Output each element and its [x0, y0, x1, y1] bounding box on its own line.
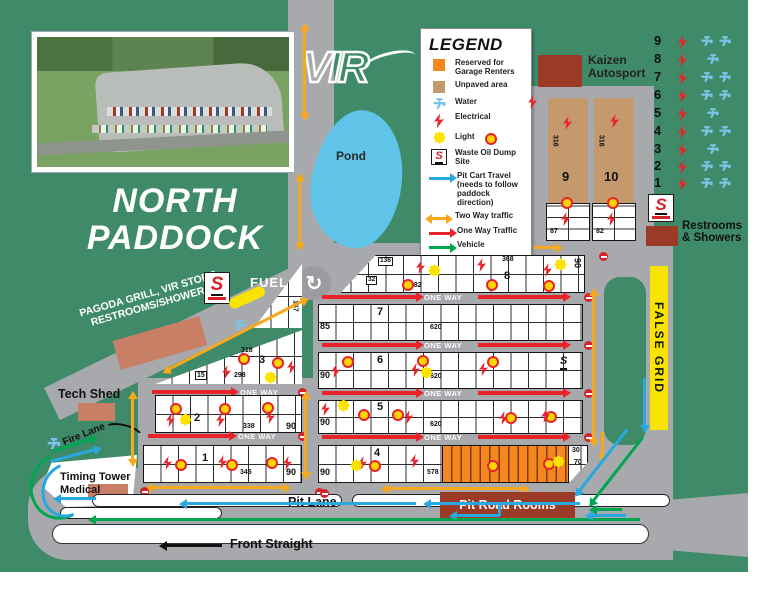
one-way-arrow: [478, 295, 564, 299]
row7-mid-label: 620: [430, 324, 442, 331]
road-right-wedge: [660, 493, 748, 557]
water-icon: [718, 161, 732, 171]
false-grid-strip: FALSE GRID: [650, 266, 668, 430]
electrical-icon: [678, 107, 687, 121]
vir-logo: VIR: [302, 46, 422, 90]
block-32-label: 32: [366, 276, 377, 285]
light-icon: [342, 356, 354, 368]
electrical-icon: [678, 125, 687, 139]
row3-number: 3: [259, 355, 265, 367]
grass-island: [604, 277, 646, 445]
pit-cart-arrow: [430, 502, 580, 505]
water-icon: [700, 72, 714, 82]
vehicle-arrow: [95, 518, 640, 521]
legend-item-two-way: Two Way traffic: [429, 212, 525, 222]
water-icon: [706, 144, 720, 154]
electrical-icon: [678, 177, 687, 191]
lot-82-label: 82: [596, 228, 604, 235]
row6-mid-label: 620: [430, 373, 442, 380]
one-way-arrow: [478, 343, 564, 347]
pit-cart-arrow: [186, 502, 416, 505]
row6-left-label: 90: [320, 371, 330, 380]
utility-row-8: 8: [654, 52, 661, 66]
electrical-icon: [678, 143, 687, 157]
vehicle-arrow: [429, 241, 451, 251]
water-icon: [700, 126, 714, 136]
strip10-number: 10: [604, 170, 618, 184]
block-345-label: 345: [240, 469, 252, 476]
photo-trucks-2: [92, 125, 267, 133]
front-straight-arrow: [166, 544, 222, 547]
block-338-label: 338: [243, 423, 255, 430]
waste-oil-icon: S: [648, 194, 674, 222]
one-way-label: ONE WAY: [424, 293, 462, 302]
row5-number: 5: [377, 402, 383, 414]
one-way-arrow: [322, 391, 417, 395]
water-icon: [718, 72, 732, 82]
row7-left-label: 85: [320, 322, 330, 331]
two-way-arrow: [304, 398, 307, 473]
light-icon: [417, 355, 429, 367]
two-way-arrow: [534, 246, 556, 249]
water-icon: [706, 108, 720, 118]
aerial-photo: [32, 32, 294, 172]
page-title: NORTH PADDOCK: [55, 183, 295, 257]
legend-item-pit-cart: Pit Cart Travel (needs to follow paddock…: [429, 172, 525, 208]
light-icon: [543, 280, 555, 292]
light-star-icon: [181, 415, 190, 424]
utility-row-2: 2: [654, 159, 661, 173]
light-icon: [487, 460, 499, 472]
light-icon: [402, 279, 414, 291]
one-way-arrow: [322, 295, 417, 299]
row8-number: 8: [504, 271, 510, 283]
legend-item-electrical: Electrical: [429, 113, 525, 128]
paddock-block-6: [318, 352, 583, 389]
title-line1: NORTH: [55, 183, 295, 220]
row7-number: 7: [377, 307, 383, 319]
water-icon: [718, 36, 732, 46]
light-icon: [266, 457, 278, 469]
one-way-arrow: [478, 435, 564, 439]
light-icon: [262, 402, 274, 414]
one-way-label: ONE WAY: [424, 389, 462, 398]
paddock-map-page: ↻ VIR Pond NORTH PADDOCK LEGEND Reserved…: [0, 0, 768, 593]
light-icon: [486, 279, 498, 291]
front-straight-road: [52, 524, 649, 544]
block-368-label: 368: [502, 256, 514, 263]
tech-shed-label: Tech Shed: [58, 388, 120, 401]
light-icon: [219, 403, 231, 415]
light-icon: [358, 409, 370, 421]
row1-number: 1: [202, 453, 208, 465]
block-298-label: 298: [234, 372, 246, 379]
lot-87-label: 87: [550, 228, 558, 235]
restrooms-label: Restrooms & Showers: [682, 220, 748, 244]
pit-road-rooms-label: Pit Road Rooms: [459, 498, 556, 512]
water-icon: [700, 90, 714, 100]
light-star-icon: [422, 368, 431, 377]
legend-title: LEGEND: [429, 35, 525, 55]
light-icon: [170, 403, 182, 415]
unpaved-strip-9: [548, 98, 588, 205]
utility-row-3: 3: [654, 142, 661, 156]
row4-mid-label: 578: [427, 469, 439, 476]
block-136-label: 136: [378, 257, 393, 266]
legend-item-vehicle: Vehicle: [429, 241, 525, 251]
electrical-icon: [429, 113, 449, 128]
legend-item-reserved: Reserved for Garage Renters: [429, 59, 525, 77]
light-star-icon: [266, 373, 275, 382]
water-icon: [718, 90, 732, 100]
one-way-label: ONE WAY: [424, 433, 462, 442]
vehicle-arrow: [596, 508, 622, 511]
row4-left-label: 90: [320, 468, 330, 477]
water-icon: [429, 98, 449, 109]
row1-right-label: 90: [286, 468, 296, 477]
do-not-enter-icon: [320, 489, 329, 498]
light-icon: [487, 356, 499, 368]
strip9-number: 9: [562, 170, 569, 184]
utility-row-9: 9: [654, 34, 661, 48]
light-icon: [369, 460, 381, 472]
row4-70-label: 70: [574, 459, 582, 466]
two-way-arrow: [429, 212, 449, 222]
light-icon: [505, 412, 517, 424]
row2-right-label: 90: [286, 422, 296, 431]
light-icon: [272, 357, 284, 369]
one-way-arrow: [152, 390, 232, 394]
utility-row-1: 1: [654, 176, 661, 190]
row2-number: 2: [194, 413, 200, 425]
utility-row-4: 4: [654, 124, 661, 138]
row4-number: 4: [374, 448, 380, 460]
two-way-arrow: [131, 398, 134, 460]
strip10-size: 316: [597, 135, 604, 147]
light-icon: [226, 459, 238, 471]
electrical-icon: [678, 89, 687, 103]
row6-number: 6: [377, 355, 383, 367]
pit-cart-arrow: [429, 172, 451, 182]
do-not-enter-icon: [599, 252, 608, 261]
legend-panel: LEGEND Reserved for Garage Renters Unpav…: [420, 28, 532, 256]
utility-row-7: 7: [654, 70, 661, 84]
legend-item-unpaved: Unpaved area: [429, 81, 525, 93]
electrical-icon: [678, 35, 687, 49]
kaizen-label: Kaizen Autosport: [588, 54, 650, 79]
waste-oil-icon: S: [204, 272, 230, 304]
electrical-icon: [678, 160, 687, 174]
two-way-arrow: [152, 486, 284, 489]
two-way-arrow: [298, 180, 301, 244]
pit-cart-arrow: [643, 378, 646, 426]
false-grid-label: FALSE GRID: [652, 302, 666, 394]
waste-oil-icon: S: [560, 356, 567, 370]
two-way-arrow: [303, 30, 306, 114]
legend-item-waste-oil: SWaste Oil Dump Site: [429, 149, 525, 167]
light-star-icon: [554, 457, 563, 466]
front-straight-label: Front Straight: [230, 538, 313, 551]
unpaved-strip-10: [594, 98, 634, 205]
row4-30-label: 30: [572, 447, 580, 454]
pit-cart-arrow: [456, 514, 500, 517]
restrooms-building: [646, 226, 678, 246]
strip9-size: 316: [551, 135, 558, 147]
row5-left-label: 90: [320, 418, 330, 427]
light-star-icon: [352, 461, 361, 470]
block-15-label: 15: [195, 371, 207, 380]
light-icon: [607, 197, 619, 209]
map-background: ↻ VIR Pond NORTH PADDOCK LEGEND Reserved…: [0, 0, 748, 572]
two-way-arrow: [592, 295, 595, 440]
water-icon: [718, 126, 732, 136]
waste-oil-icon: S: [429, 149, 449, 165]
pit-cart-arrow: [592, 514, 626, 517]
water-icon: [700, 161, 714, 171]
light-star-icon: [556, 260, 565, 269]
light-icon: [175, 459, 187, 471]
row5-mid-label: 620: [430, 421, 442, 428]
one-way-arrow: [429, 227, 451, 237]
paddock-block-7: [318, 304, 583, 341]
roundabout-glyph: ↻: [306, 271, 323, 296]
photo-trucks: [107, 107, 272, 116]
light-star-icon: [339, 401, 348, 410]
one-way-arrow: [148, 434, 230, 438]
electrical-icon: [678, 71, 687, 85]
water-icon: [718, 178, 732, 188]
one-way-label: ONE WAY: [238, 432, 276, 441]
light-circle-icon: [485, 133, 497, 145]
electrical-icon: [678, 53, 687, 67]
one-way-arrow: [322, 343, 417, 347]
row8-right-label: 90: [572, 258, 581, 268]
water-icon: [700, 36, 714, 46]
water-icon: [700, 178, 714, 188]
light-icon: [429, 133, 449, 143]
light-star-icon: [430, 266, 439, 275]
title-line2: PADDOCK: [55, 220, 295, 257]
pit-cart-arrow: [60, 497, 96, 500]
legend-item-light: Light: [429, 133, 525, 145]
unpaved-swatch: [429, 81, 449, 93]
water-icon: [706, 54, 720, 64]
one-way-label: ONE WAY: [424, 341, 462, 350]
light-icon: [392, 409, 404, 421]
light-icon: [238, 353, 250, 365]
light-icon: [561, 197, 573, 209]
two-way-arrow: [388, 487, 523, 490]
utility-row-5: 5: [654, 106, 661, 120]
one-way-arrow: [478, 391, 564, 395]
reserved-swatch: [429, 59, 449, 71]
kaizen-building: [538, 55, 582, 87]
legend-item-one-way: One Way Traffic: [429, 227, 525, 237]
pond-label: Pond: [336, 150, 366, 163]
utility-row-6: 6: [654, 88, 661, 102]
tech-shed-building: [78, 403, 115, 421]
one-way-arrow: [322, 435, 417, 439]
one-way-down-arrow: [601, 432, 604, 456]
legend-item-water: Water: [429, 98, 525, 109]
